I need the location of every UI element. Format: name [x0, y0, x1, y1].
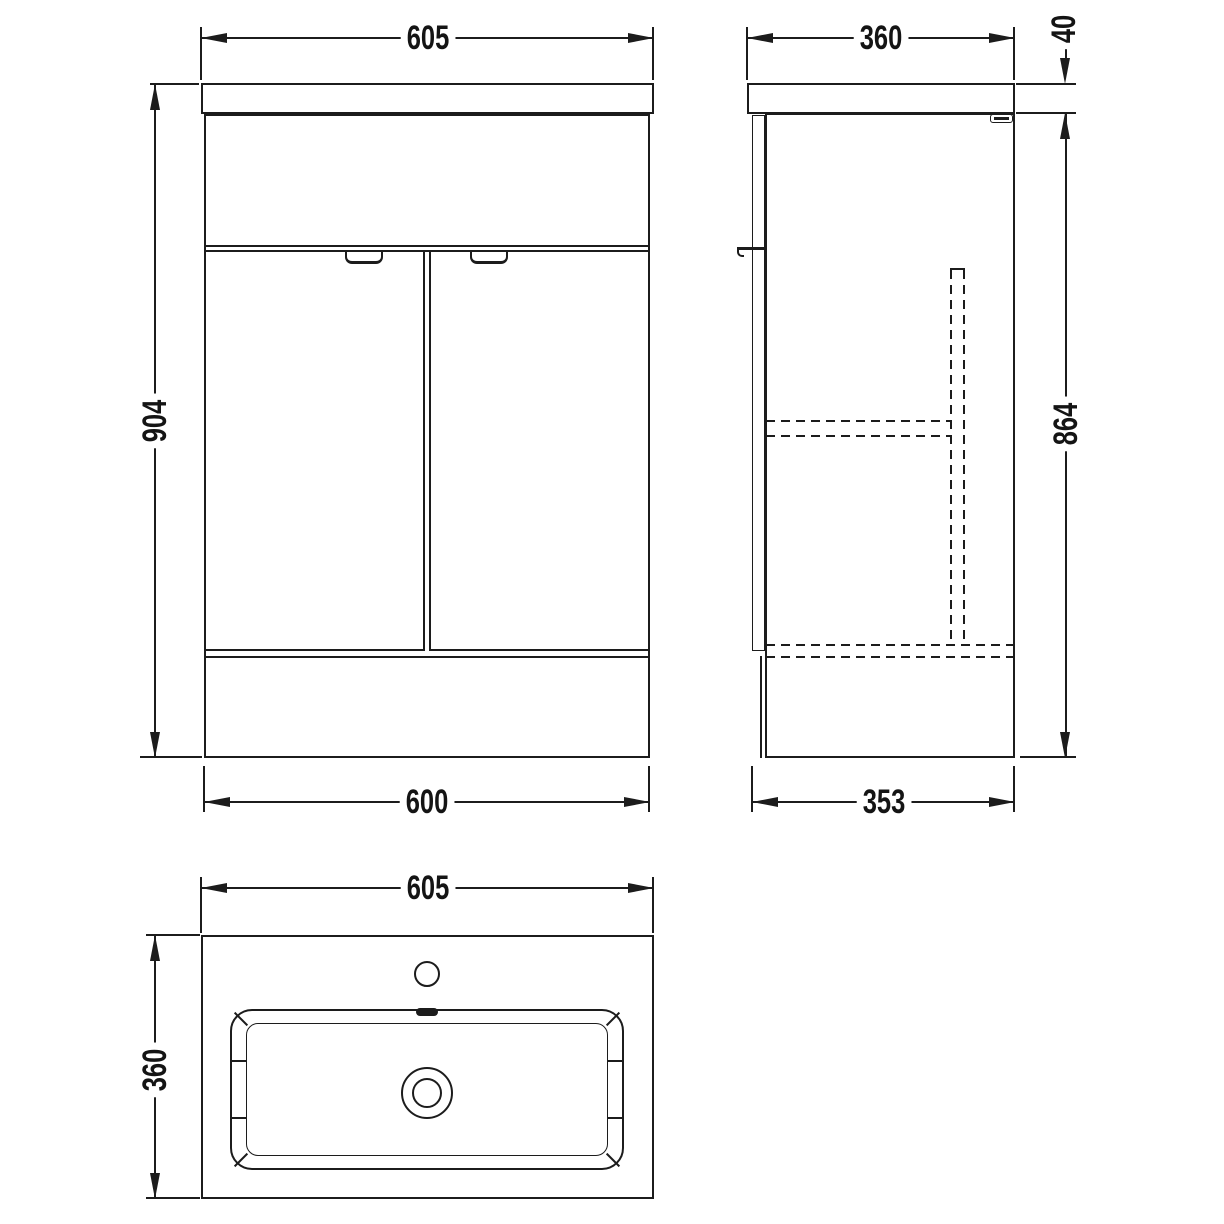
dimension-label-front-bottom-width: 600: [400, 784, 455, 820]
front-right-door: [429, 250, 650, 651]
side-door-panel: [752, 115, 765, 651]
hidden-back-panel-line: [963, 270, 965, 646]
side-worktop: [747, 83, 1015, 114]
overflow-slot: [416, 1008, 438, 1016]
arrowhead-left: [201, 883, 227, 893]
dimension-label-worktop-thickness: 40: [1046, 9, 1082, 49]
side-handle-hook: [737, 247, 744, 257]
technical-drawing-canvas: 605 904 600 360 40 864: [0, 0, 1224, 1224]
arrowhead-right: [628, 33, 654, 43]
arrowhead-left: [747, 33, 773, 43]
hidden-bottom-panel-line: [766, 656, 1013, 658]
dimension-label-plan-width: 605: [401, 870, 456, 906]
side-plinth-front-line: [760, 656, 762, 758]
basin-rim-tick: [230, 1060, 247, 1062]
arrowhead-up: [150, 84, 160, 110]
front-left-door-handle: [345, 252, 383, 264]
arrowhead-up: [150, 935, 160, 961]
arrowhead-left: [752, 797, 778, 807]
basin-rim-tick: [230, 1117, 247, 1119]
dimension-label-front-height: 904: [137, 394, 173, 449]
dimension-label-cabinet-height: 864: [1048, 397, 1084, 452]
hidden-bottom-panel-line: [766, 644, 1013, 646]
dimension-label-side-bottom-depth: 353: [857, 784, 912, 820]
arrowhead-left: [201, 33, 227, 43]
side-fixing-bracket-bar: [994, 117, 1009, 120]
arrowhead-right: [989, 797, 1015, 807]
hidden-back-panel-line: [950, 270, 952, 646]
arrowhead-down: [1060, 58, 1070, 84]
extension-line: [1020, 756, 1076, 758]
tap-hole: [414, 961, 440, 987]
arrowhead-up: [1060, 113, 1070, 139]
basin-rim-tick: [607, 1117, 624, 1119]
arrowhead-down: [1060, 732, 1070, 758]
front-plinth: [204, 656, 650, 758]
dimension-label-plan-depth: 360: [137, 1043, 173, 1098]
hidden-shelf-line: [766, 435, 952, 437]
arrowhead-left: [204, 797, 230, 807]
waste-outlet-inner: [412, 1078, 442, 1108]
hidden-shelf-line: [766, 420, 952, 422]
dimension-label-front-top-width: 605: [401, 20, 456, 56]
arrowhead-right: [628, 883, 654, 893]
basin-rim-tick: [607, 1060, 624, 1062]
front-right-door-handle: [470, 252, 508, 264]
arrowhead-right: [989, 33, 1015, 43]
dimension-label-side-top-depth: 360: [854, 20, 909, 56]
arrowhead-down: [150, 1173, 160, 1199]
front-worktop: [201, 83, 654, 114]
front-left-door: [204, 250, 425, 651]
arrowhead-right: [624, 797, 650, 807]
front-shelf-line: [206, 245, 648, 247]
arrowhead-down: [150, 732, 160, 758]
